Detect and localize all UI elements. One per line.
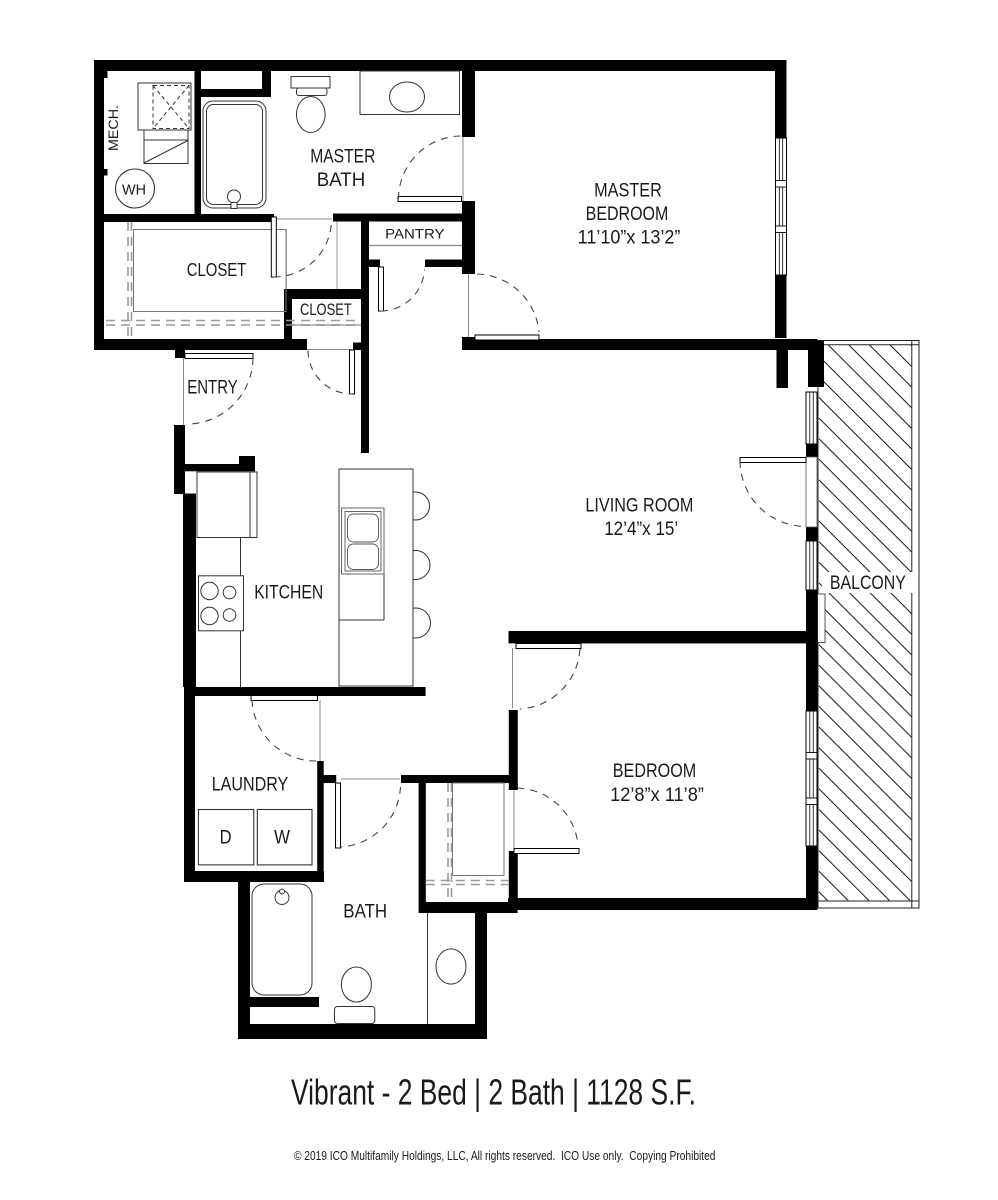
svg-text:LIVING ROOM: LIVING ROOM [585,495,693,517]
svg-text:BALCONY: BALCONY [830,572,906,594]
svg-text:12’8”x 11’8”: 12’8”x 11’8” [610,784,704,806]
svg-text:ENTRY: ENTRY [187,376,238,398]
svg-text:LAUNDRY: LAUNDRY [212,774,289,796]
svg-text:CLOSET: CLOSET [187,259,247,280]
svg-text:CLOSET: CLOSET [300,300,352,319]
svg-text:BEDROOM: BEDROOM [613,760,696,782]
svg-text:MASTER: MASTER [310,145,375,167]
svg-text:W: W [274,828,290,849]
svg-text:D: D [220,828,232,849]
svg-text:© 2019 ICO Multifamily Holding: © 2019 ICO Multifamily Holdings, LLC, Al… [294,1148,716,1163]
svg-text:WH: WH [122,183,146,199]
svg-text:Vibrant - 2 Bed | 2 Bath | 112: Vibrant - 2 Bed | 2 Bath | 1128 S.F. [291,1072,696,1113]
svg-text:KITCHEN: KITCHEN [254,581,323,603]
svg-text:BATH: BATH [317,169,365,191]
svg-text:12’4”x 15’: 12’4”x 15’ [604,518,678,540]
svg-text:MECH.: MECH. [105,105,121,151]
svg-text:BEDROOM: BEDROOM [586,203,669,225]
svg-text:MASTER: MASTER [594,180,662,202]
svg-text:BATH: BATH [343,901,387,923]
svg-text:11’10”x 13’2”: 11’10”x 13’2” [578,227,681,249]
svg-text:PANTRY: PANTRY [385,226,445,242]
